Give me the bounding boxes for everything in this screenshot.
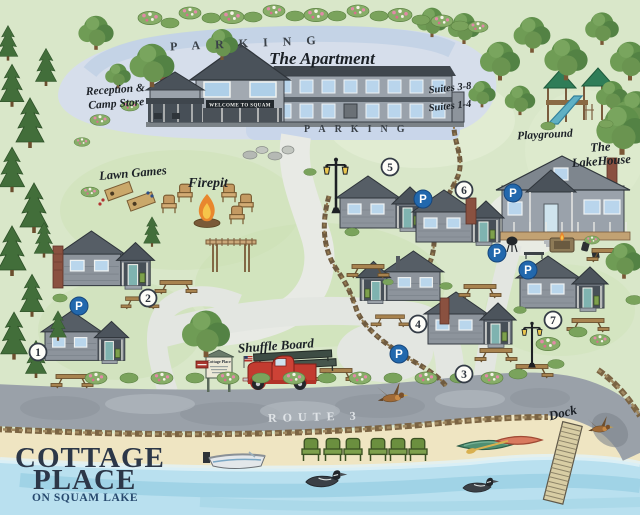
parking-badge: P: [390, 345, 408, 363]
firepit-label: Firepit: [187, 176, 229, 191]
cottage-number-badge-6: 6: [456, 182, 473, 199]
parking-badge: P: [414, 190, 432, 208]
svg-text:5: 5: [387, 162, 393, 174]
route-3-label: ROUTE 3: [268, 409, 362, 425]
cottage-number-badge-3: 3: [456, 366, 473, 383]
svg-text:2: 2: [145, 293, 151, 305]
parking-lower-label: PARKING: [304, 124, 413, 135]
parking-badge: P: [488, 244, 506, 262]
svg-text:1: 1: [35, 347, 41, 359]
entrance-sign-text: Cottage Place: [207, 359, 231, 364]
lakehouse-label-line1: The: [590, 139, 612, 154]
svg-text:4: 4: [415, 319, 421, 331]
squam-lake-resort-map: WELCOME TO SQUAM: [0, 0, 640, 515]
svg-text:P: P: [419, 194, 427, 206]
svg-text:P: P: [509, 188, 517, 200]
svg-text:P: P: [493, 248, 501, 260]
cottage-number-badge-4: 4: [410, 316, 427, 333]
cottage-number-badge-1: 1: [30, 344, 47, 361]
cottage-number-badge-2: 2: [140, 290, 157, 307]
logo-subtitle: ON SQUAM LAKE: [32, 492, 138, 504]
parking-badge: P: [504, 184, 522, 202]
cottage-number-badge-7: 7: [545, 312, 562, 329]
svg-text:P: P: [75, 301, 83, 313]
apartment-label: The Apartment: [269, 49, 376, 68]
svg-text:3: 3: [461, 369, 467, 381]
svg-text:P: P: [524, 265, 532, 277]
vacancy-sign: [196, 361, 208, 368]
svg-text:7: 7: [550, 315, 556, 327]
svg-text:P: P: [395, 349, 403, 361]
svg-text:6: 6: [461, 185, 467, 197]
parking-badge: P: [70, 297, 88, 315]
cottage-number-badge-5: 5: [382, 159, 399, 176]
welcome-sign-text: WELCOME TO SQUAM: [209, 103, 271, 108]
parking-badge: P: [519, 261, 537, 279]
